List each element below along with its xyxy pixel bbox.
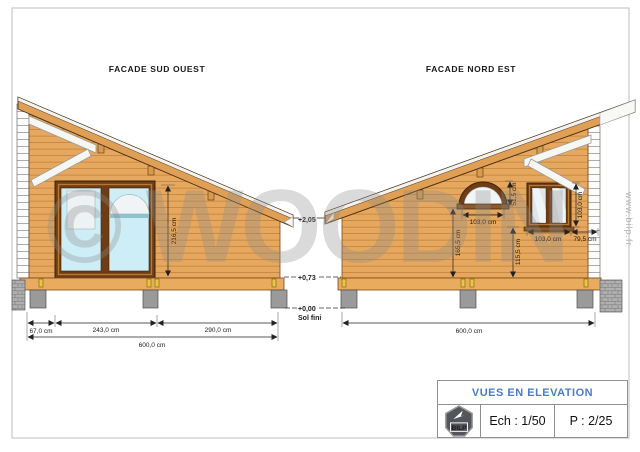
level-ground-label: Sol fini: [298, 315, 321, 322]
watermark-site: www.bilp.fr: [624, 192, 634, 247]
floor-beam: [338, 278, 601, 290]
dim-window-width: 103,0 cm: [535, 236, 562, 243]
window-reflection: [67, 191, 95, 229]
facade-sw-title: FACADE SUD OUEST: [109, 64, 206, 74]
purlin-end: [477, 168, 483, 177]
dim-window: 243,0 cm: [93, 327, 120, 334]
log-corner-right: [588, 126, 600, 278]
facade-sud-ouest: FACADE SUD OUEST: [12, 64, 293, 349]
dim-right: 290,0 cm: [205, 327, 232, 334]
bay-window: [55, 181, 155, 278]
dim-wall-height: 216,5 cm: [171, 218, 178, 245]
bilp-logo: BILP: [438, 405, 481, 437]
level-floor: +0,73: [298, 275, 316, 282]
logo-text: BILP: [452, 425, 468, 432]
floor-beam: [20, 278, 284, 290]
dimension-lines-ne: 600,0 cm: [342, 312, 595, 335]
facade-nord-est: FACADE NORD EST: [325, 64, 635, 335]
facade-ne-title: FACADE NORD EST: [426, 64, 516, 74]
title-block-title: VUES EN ELEVATION: [438, 381, 627, 405]
reflection-sill: [109, 214, 149, 218]
dim-sill-floor: 115,5 cm: [515, 239, 522, 265]
purlin-end: [417, 190, 423, 199]
scale-value: Ech : 1/50: [481, 405, 554, 437]
bilp-logo-icon: BILP: [443, 405, 475, 437]
dim-arch-width: 103,0 cm: [470, 219, 497, 226]
page-number: P : 2/25: [554, 405, 627, 437]
dim-total-ne: 600,0 cm: [456, 328, 483, 335]
dim-arch-height: 51,5 cm: [511, 182, 518, 205]
log-corner-left: [17, 104, 29, 278]
masonry-pier: [12, 280, 25, 310]
square-window: [524, 183, 574, 231]
level-annotations: +2,05 +0,73 +0,00 Sol fini: [284, 217, 346, 322]
dim-window-height: 103,0 cm: [577, 192, 584, 219]
dim-window-corner: 79,5 cm: [573, 236, 596, 243]
foundation-piers: [341, 290, 593, 308]
foundation-piers: [30, 290, 287, 308]
level-eave: +2,05: [298, 217, 316, 224]
dim-arch-floor: 165,5 cm: [455, 230, 462, 257]
title-block: VUES EN ELEVATION BILP Ech : 1/50 P : 2/…: [437, 380, 628, 438]
level-ground: +0,00: [298, 306, 316, 313]
dimension-lines-sw: 67,0 cm 243,0 cm 290,0 cm 600,0 cm: [27, 312, 278, 349]
dim-total-sw: 600,0 cm: [139, 342, 166, 349]
drawing-sheet: FACADE SUD OUEST: [0, 0, 640, 452]
masonry-pier: [600, 280, 622, 312]
dim-left: 67,0 cm: [29, 328, 52, 335]
